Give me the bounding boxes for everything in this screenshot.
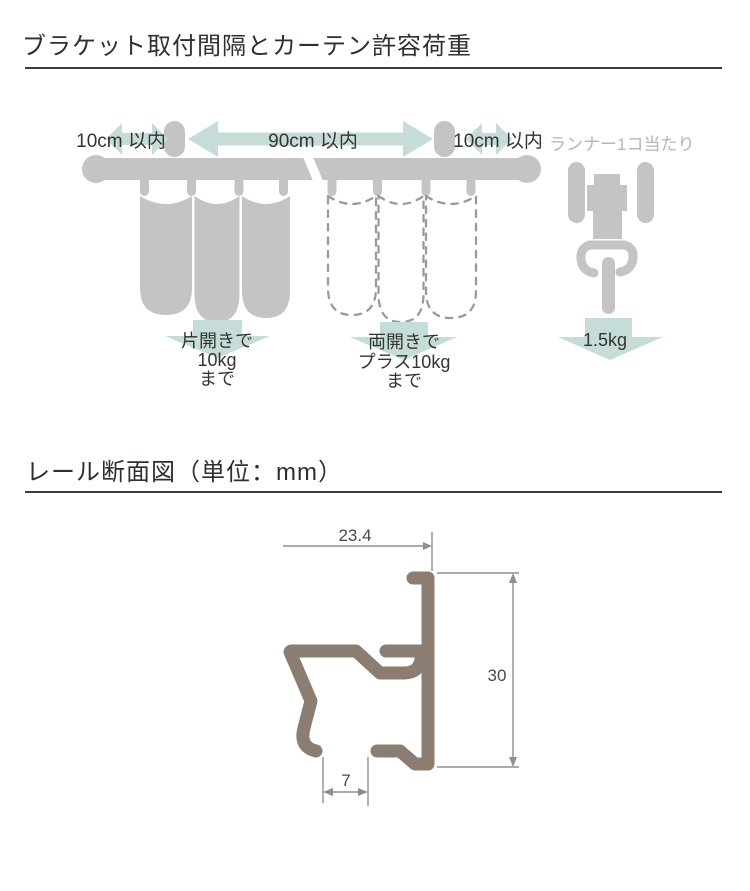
right-load-line1: 両開きで	[368, 332, 440, 352]
label-span-center: 90cm 以内	[268, 130, 358, 152]
label-load-left: 片開きで 10kg まで	[181, 331, 253, 389]
label-span-left: 10cm 以内	[76, 130, 166, 152]
bracket-right	[434, 121, 455, 157]
runner-icon	[568, 162, 654, 314]
label-span-right: 10cm 以内	[453, 130, 543, 152]
section1-title: ブラケット取付間隔とカーテン許容荷重	[22, 26, 472, 61]
rail-cross-section-diagram: 23.4 30 7	[0, 510, 750, 830]
dimension-height	[437, 573, 519, 767]
rail-profile	[290, 578, 428, 764]
label-runner-load: 1.5kg	[583, 330, 627, 350]
right-load-line3: まで	[386, 371, 422, 391]
label-dim-width: 23.4	[338, 526, 371, 545]
bracket-spacing-diagram: 10cm 以内 90cm 以内 10cm 以内 ランナー1コ当たり	[0, 105, 750, 410]
label-load-right: 両開きで プラス10kg まで	[358, 332, 451, 391]
label-dim-height: 30	[488, 666, 507, 685]
left-load-line1: 片開きで	[181, 331, 253, 351]
curtain-solid	[140, 196, 290, 322]
curtain-dashed	[328, 196, 476, 322]
section2-title: レール断面図（単位：mm）	[26, 452, 343, 487]
label-runner-caption: ランナー1コ当たり	[549, 135, 694, 154]
right-load-line2: プラス10kg	[358, 352, 451, 372]
section2-divider	[25, 491, 722, 493]
left-load-line3: まで	[199, 369, 235, 389]
page: ブラケット取付間隔とカーテン許容荷重 10cm 以内 90cm 以内 10cm …	[0, 0, 750, 891]
section1-divider	[25, 67, 722, 69]
left-load-line2: 10kg	[197, 350, 236, 370]
label-dim-slot: 7	[341, 771, 350, 790]
